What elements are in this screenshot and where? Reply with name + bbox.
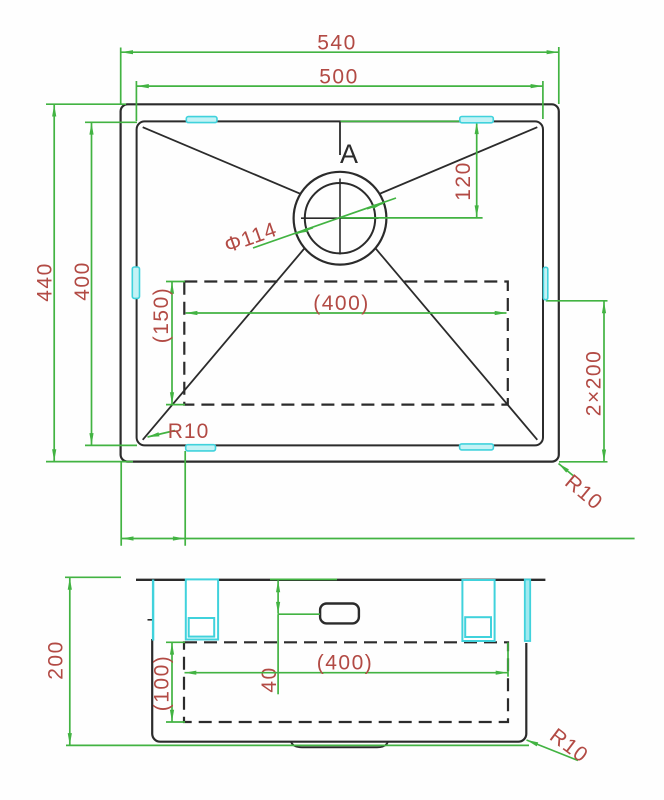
svg-text:(150): (150) — [150, 287, 173, 344]
svg-text:400: 400 — [71, 261, 94, 301]
svg-text:(100): (100) — [151, 655, 174, 712]
svg-text:R10: R10 — [545, 724, 592, 767]
svg-text:2×200: 2×200 — [583, 350, 606, 416]
svg-text:40: 40 — [258, 666, 281, 692]
svg-text:540: 540 — [317, 32, 357, 55]
svg-text:R10: R10 — [560, 470, 607, 514]
svg-text:120: 120 — [452, 161, 475, 201]
svg-text:R10: R10 — [168, 420, 210, 443]
svg-text:500: 500 — [319, 66, 359, 89]
svg-text:200: 200 — [45, 640, 68, 680]
svg-text:A: A — [340, 139, 358, 169]
svg-text:440: 440 — [34, 262, 57, 302]
svg-text:(400): (400) — [313, 292, 370, 315]
svg-text:Φ114: Φ114 — [221, 218, 280, 258]
svg-text:(400): (400) — [317, 652, 374, 675]
